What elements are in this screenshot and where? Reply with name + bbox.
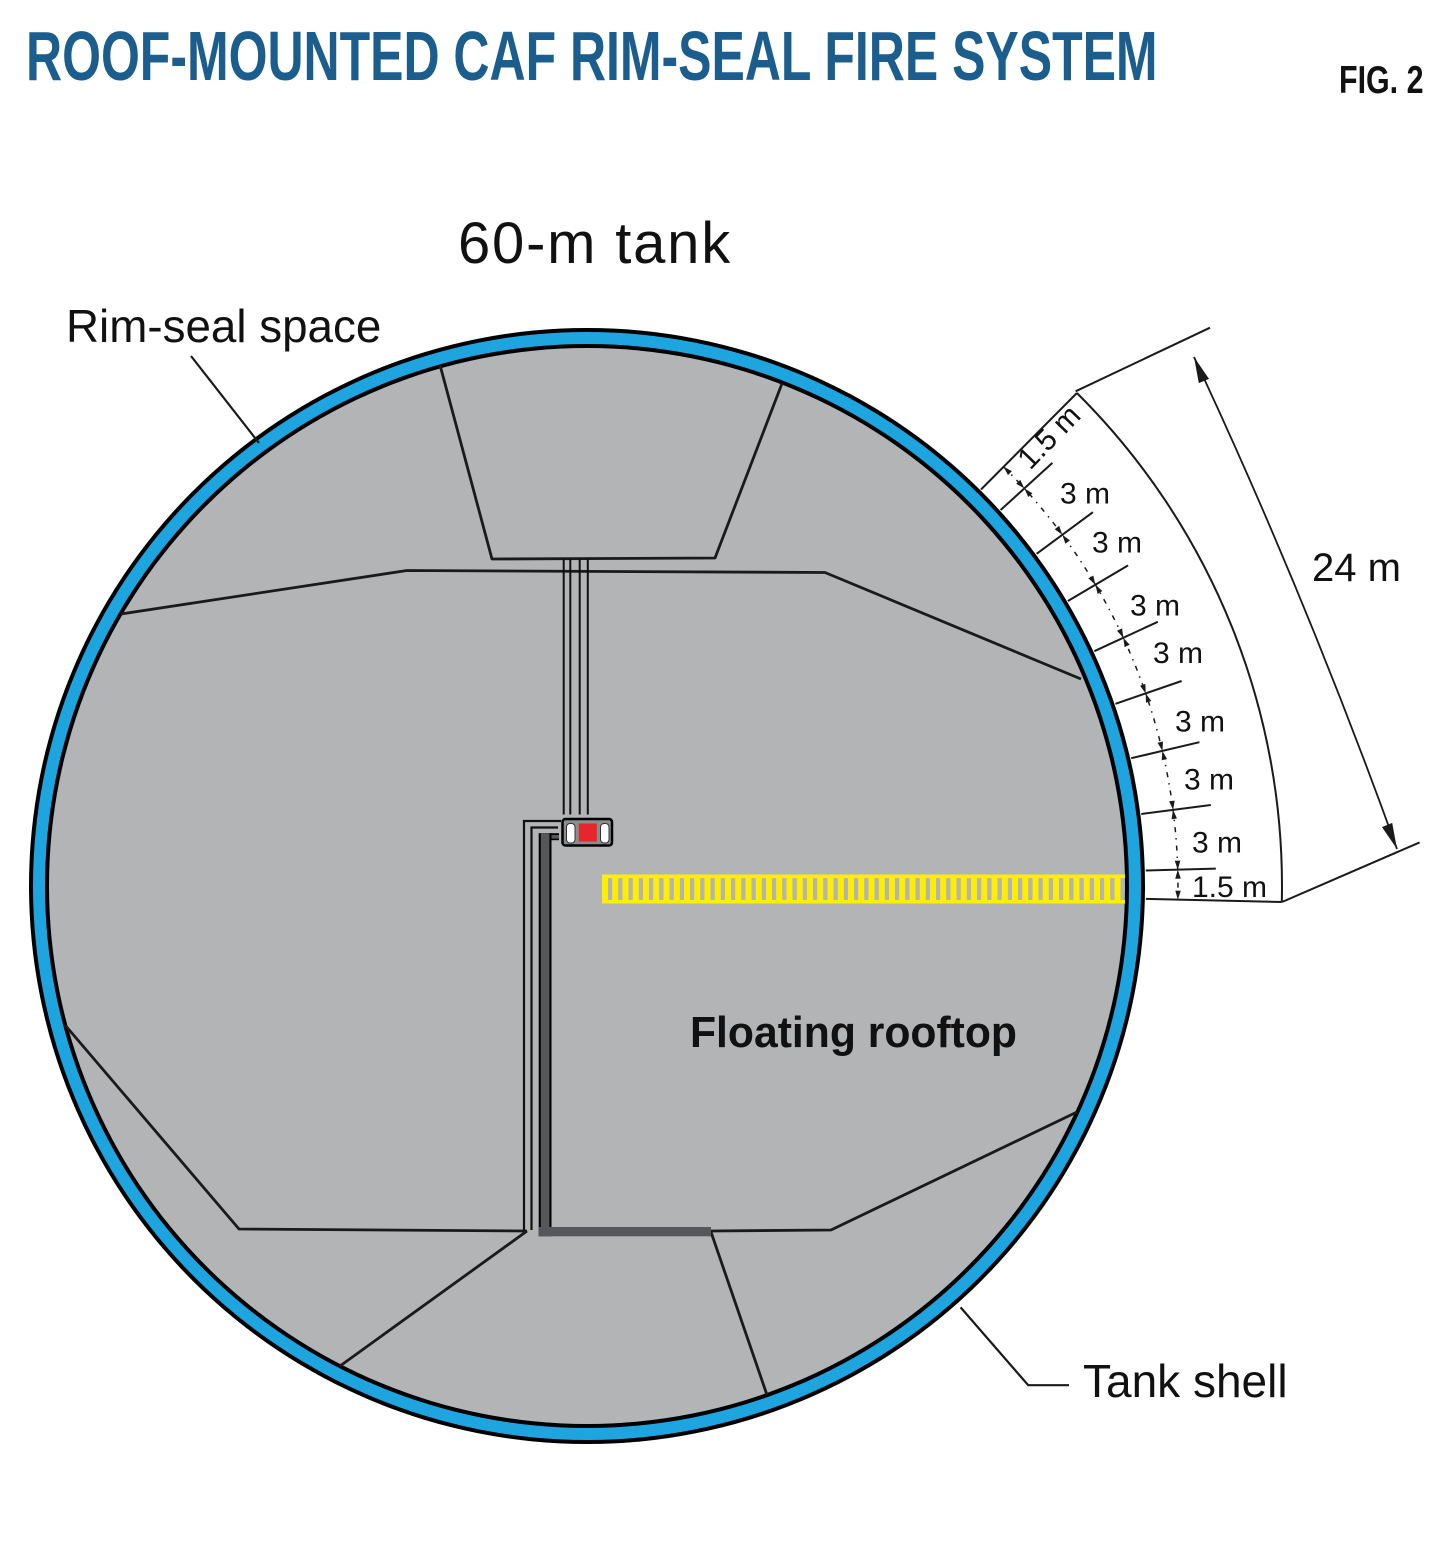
svg-text:3 m: 3 m — [1130, 590, 1180, 623]
svg-text:60-m tank: 60-m tank — [458, 211, 732, 276]
svg-text:3 m: 3 m — [1184, 764, 1234, 797]
svg-text:3 m: 3 m — [1092, 527, 1142, 560]
svg-text:3 m: 3 m — [1153, 637, 1203, 670]
svg-text:ROOF-MOUNTED CAF RIM-SEAL FIRE: ROOF-MOUNTED CAF RIM-SEAL FIRE SYSTEM — [26, 17, 1158, 95]
svg-text:24 m: 24 m — [1312, 546, 1401, 590]
svg-text:3 m: 3 m — [1060, 478, 1110, 511]
svg-text:Floating rooftop: Floating rooftop — [690, 1008, 1017, 1057]
svg-text:Rim-seal space: Rim-seal space — [66, 300, 381, 352]
svg-text:3 m: 3 m — [1192, 827, 1242, 860]
svg-text:1.5 m: 1.5 m — [1192, 871, 1267, 904]
svg-text:Tank shell: Tank shell — [1083, 1355, 1288, 1407]
svg-text:FIG. 2: FIG. 2 — [1339, 58, 1424, 101]
svg-text:3 m: 3 m — [1175, 706, 1225, 739]
